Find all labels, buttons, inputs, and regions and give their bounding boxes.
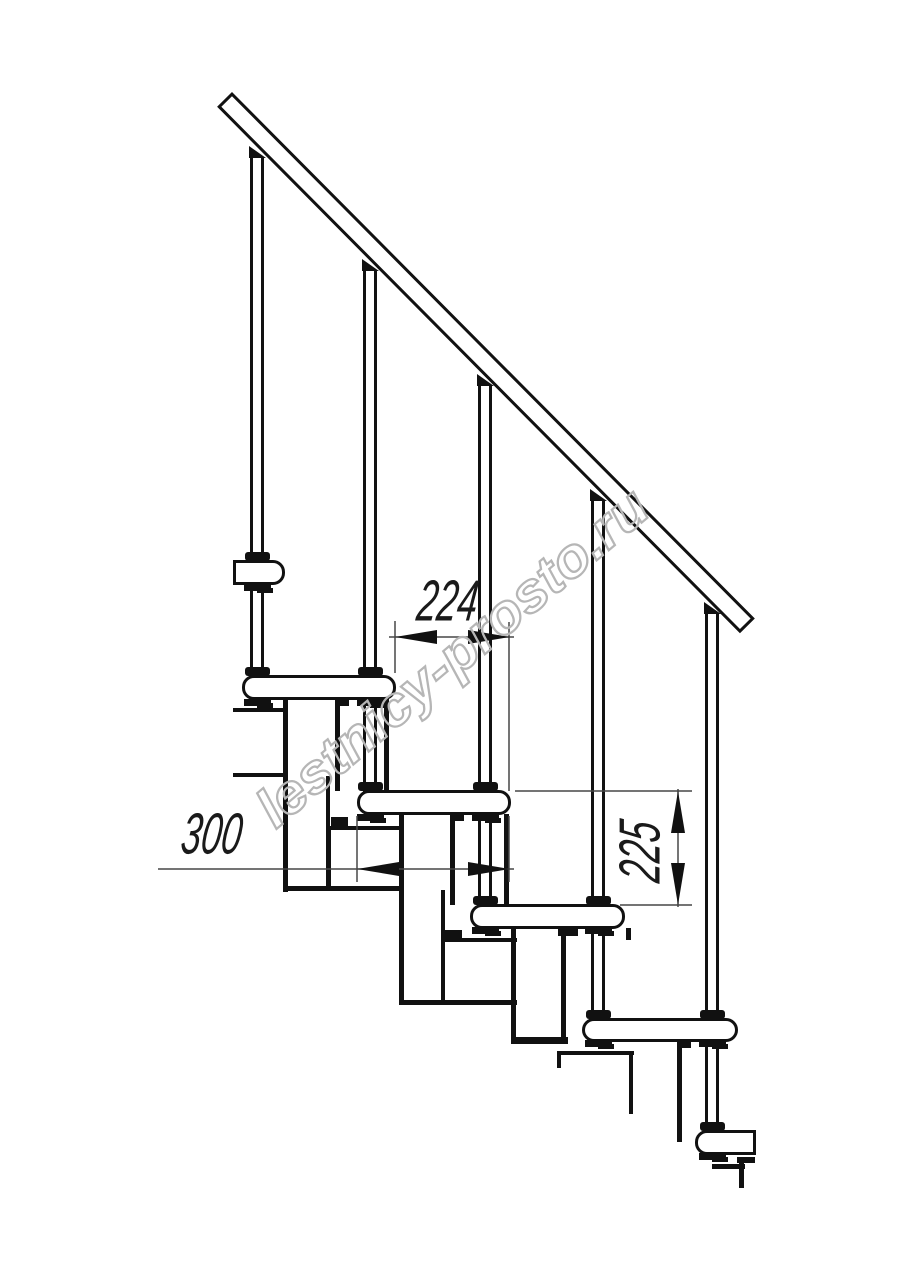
- drawing-canvas: 224 300 225 lestnicy-prosto.ru: [0, 0, 914, 1280]
- watermark: lestnicy-prosto.ru: [0, 0, 914, 1280]
- watermark-text: lestnicy-prosto.ru: [244, 475, 661, 839]
